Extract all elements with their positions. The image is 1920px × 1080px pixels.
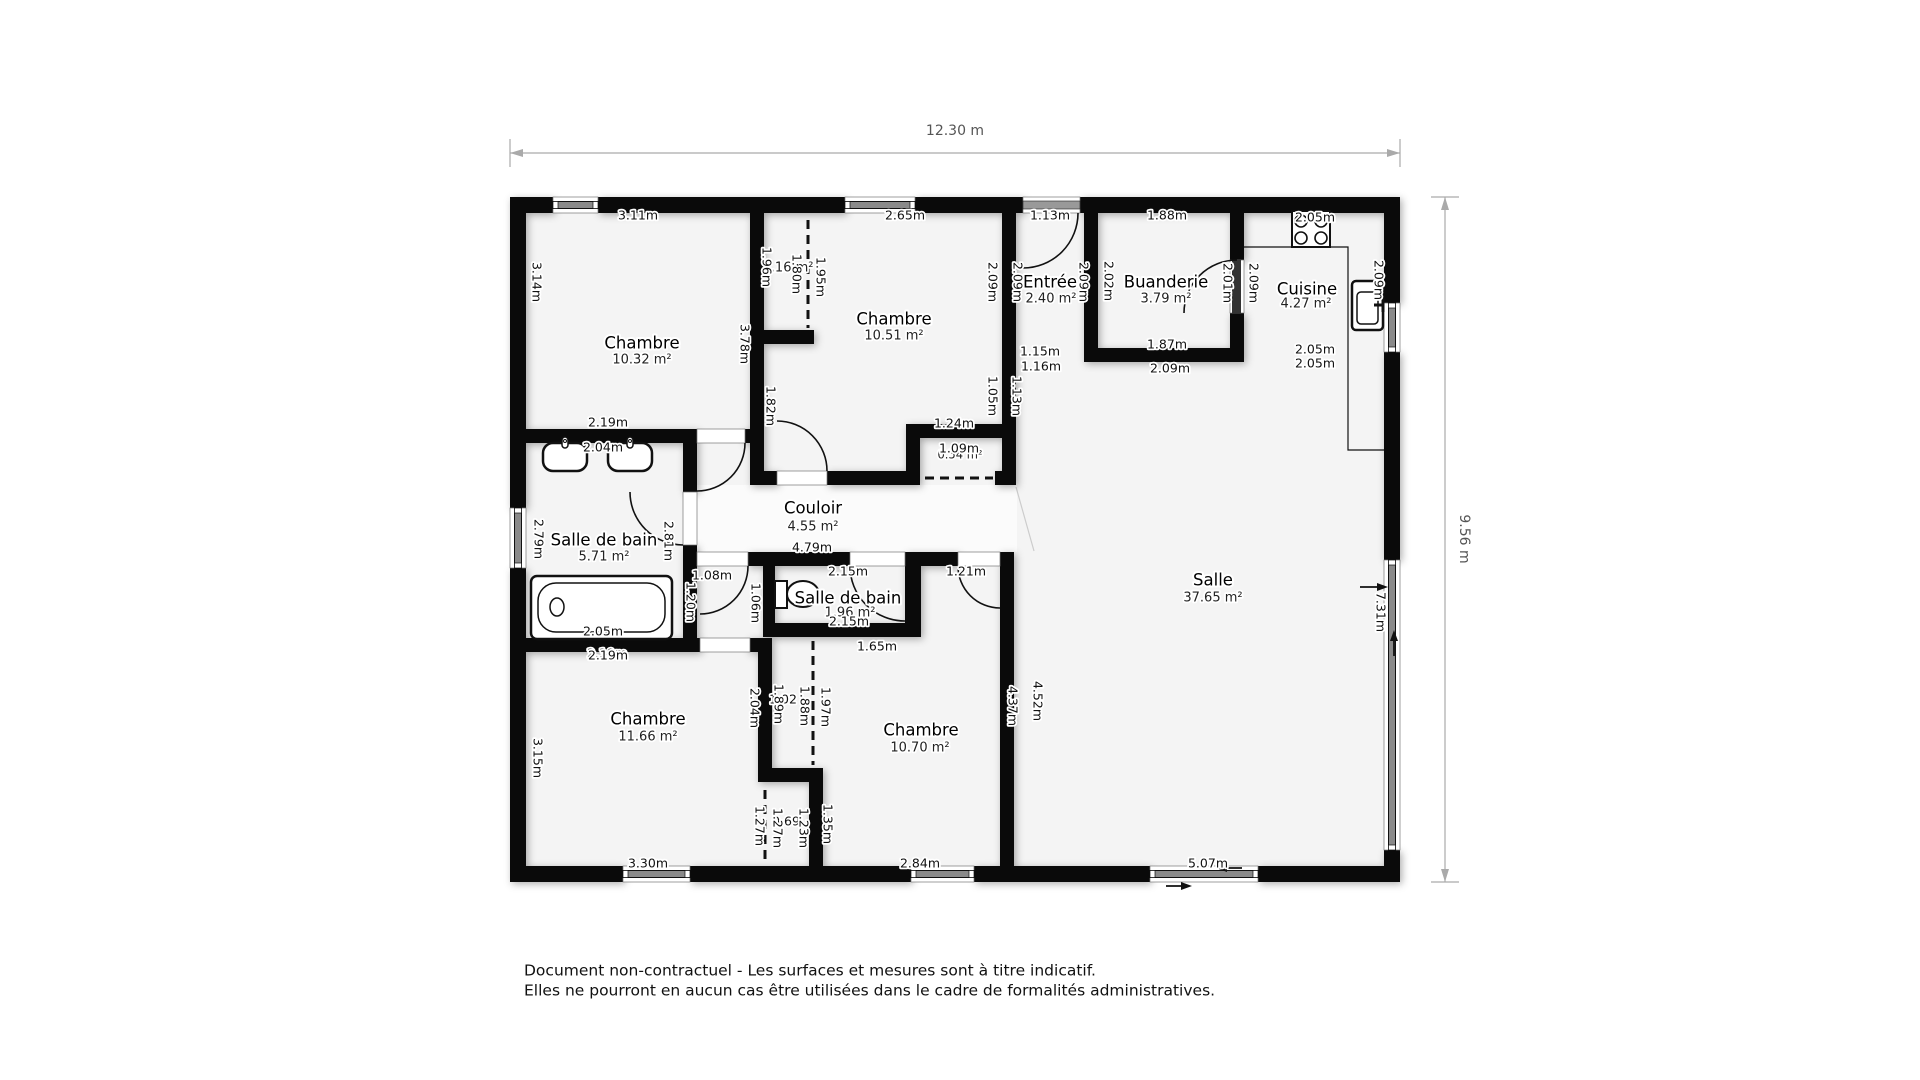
dim-label: 1.20m [684, 582, 699, 622]
dim-label: 1.97m [819, 687, 834, 727]
dim-label: 3.11m [618, 208, 658, 223]
dim-label: 1.87m [1147, 337, 1187, 352]
dim-label: 1.13m [1030, 208, 1070, 223]
dim-label: 1.82m [764, 386, 779, 426]
dim-label: 2.04m [583, 440, 623, 455]
dim-label: 2.19m [588, 415, 628, 430]
room-label-chambre-tm: Chambre [856, 310, 931, 329]
dim-label: 2.65m [885, 208, 925, 223]
dim-label: 1.96m [760, 247, 775, 287]
dim-label: 4.37m [1006, 686, 1021, 726]
dim-label: 1.88m [798, 686, 813, 726]
room-area-cuisine: 4.27 m² [1281, 297, 1332, 312]
dim-label: 2.04m [748, 688, 763, 728]
dim-label: 2.09m [986, 262, 1001, 302]
room-area-couloir: 4.55 m² [788, 520, 839, 535]
dim-label: 1.05m [986, 376, 1001, 416]
dim-label: 2.09m [1372, 260, 1387, 300]
disclaimer-line2: Elles ne pourront en aucun cas être util… [524, 982, 1215, 1000]
dim-label: 2.09m [1247, 263, 1262, 303]
dim-label: 2.09m [1011, 262, 1026, 302]
dim-label: 3.30m [628, 856, 668, 871]
dim-label: 1.15m [1020, 344, 1060, 359]
dim-label: 1.09m [939, 441, 979, 456]
room-label-chambre-bm: Chambre [883, 721, 958, 740]
dim-label: 2.79m [532, 519, 547, 559]
dim-label: 3.14m [530, 262, 545, 302]
dim-label: 2.05m [1295, 356, 1335, 371]
window-cuisine [1384, 303, 1400, 352]
dim-label: 2.09m [1077, 262, 1092, 302]
room-label-chambre-tl: Chambre [604, 334, 679, 353]
dim-label: 2.05m [1295, 342, 1335, 357]
dim-label: 1.95m [814, 257, 829, 297]
room-label-salle: Salle [1193, 571, 1233, 590]
couloir-floor [683, 485, 1017, 552]
floor-plan-drawing: 12.30 m 9.56 m Chambre 10.32 m² Chambre … [0, 0, 1920, 1080]
dim-label: 1.16m [1021, 359, 1061, 374]
dim-label: 2.81m [662, 521, 677, 561]
dim-label: 7.31m [1374, 592, 1389, 632]
room-label-entree: Entrée [1023, 273, 1077, 292]
window-279 [510, 508, 526, 568]
room-area-salle: 37.65 m² [1183, 591, 1242, 606]
dim-label: 1.89m [772, 684, 787, 724]
dim-label: 1.24m [934, 416, 974, 431]
room-area-entree: 2.40 m² [1026, 292, 1077, 307]
disclaimer: Document non-contractuel - Les surfaces … [524, 962, 1215, 1000]
room-area-buanderie: 3.79 m² [1141, 292, 1192, 307]
dim-label: 1.06m [749, 583, 764, 623]
dim-label: 2.19m [588, 648, 628, 663]
dim-label: 1.35m [821, 804, 836, 844]
dim-label: 5.07m [1188, 856, 1228, 871]
dim-label: 1.88m [1147, 208, 1187, 223]
room-area-chambre-bm: 10.70 m² [890, 741, 949, 756]
dim-label: 1.21m [946, 564, 986, 579]
room-area-chambre-tm: 10.51 m² [864, 329, 923, 344]
dim-label: 4.79m [792, 540, 832, 555]
dim-label: 2.01m [1221, 263, 1236, 303]
room-label-couloir: Couloir [784, 499, 842, 518]
dim-label: 1.27m [753, 806, 768, 846]
dim-label: 3.78m [738, 324, 753, 364]
overall-width-label: 12.30 m [926, 123, 984, 139]
dim-label: 2.84m [900, 856, 940, 871]
room-label-chambre-bl: Chambre [610, 710, 685, 729]
dim-label: 1.27m [771, 808, 786, 848]
window-311 [553, 197, 598, 213]
room-label-buanderie: Buanderie [1124, 273, 1209, 292]
room-area-chambre-tl: 10.32 m² [612, 353, 671, 368]
dim-label: 1.08m [692, 568, 732, 583]
dim-label: 3.15m [531, 738, 546, 778]
dim-label: 1.23m [797, 808, 812, 848]
dim-label: 2.09m [1150, 361, 1190, 376]
dim-label: 2.05m [1295, 210, 1335, 225]
dim-label: 1.65m [857, 639, 897, 654]
room-label-sdb-grande: Salle de bain [551, 531, 658, 550]
room-area-sdb-grande: 5.71 m² [579, 550, 630, 565]
disclaimer-line1: Document non-contractuel - Les surfaces … [524, 962, 1096, 980]
dim-label: 2.15m [829, 614, 869, 629]
dim-label: 2.05m [583, 624, 623, 639]
dim-label: 1.13m [1010, 376, 1025, 416]
dim-label: 4.52m [1031, 681, 1046, 721]
dim-label: 2.15m [828, 564, 868, 579]
floor-plan-page: 12.30 m 9.56 m Chambre 10.32 m² Chambre … [0, 0, 1920, 1080]
overall-height-label: 9.56 m [1456, 514, 1472, 563]
dim-label: 2.02m [1102, 261, 1117, 301]
room-area-chambre-bl: 11.66 m² [618, 730, 677, 745]
dim-label: 1.80m [790, 254, 805, 294]
